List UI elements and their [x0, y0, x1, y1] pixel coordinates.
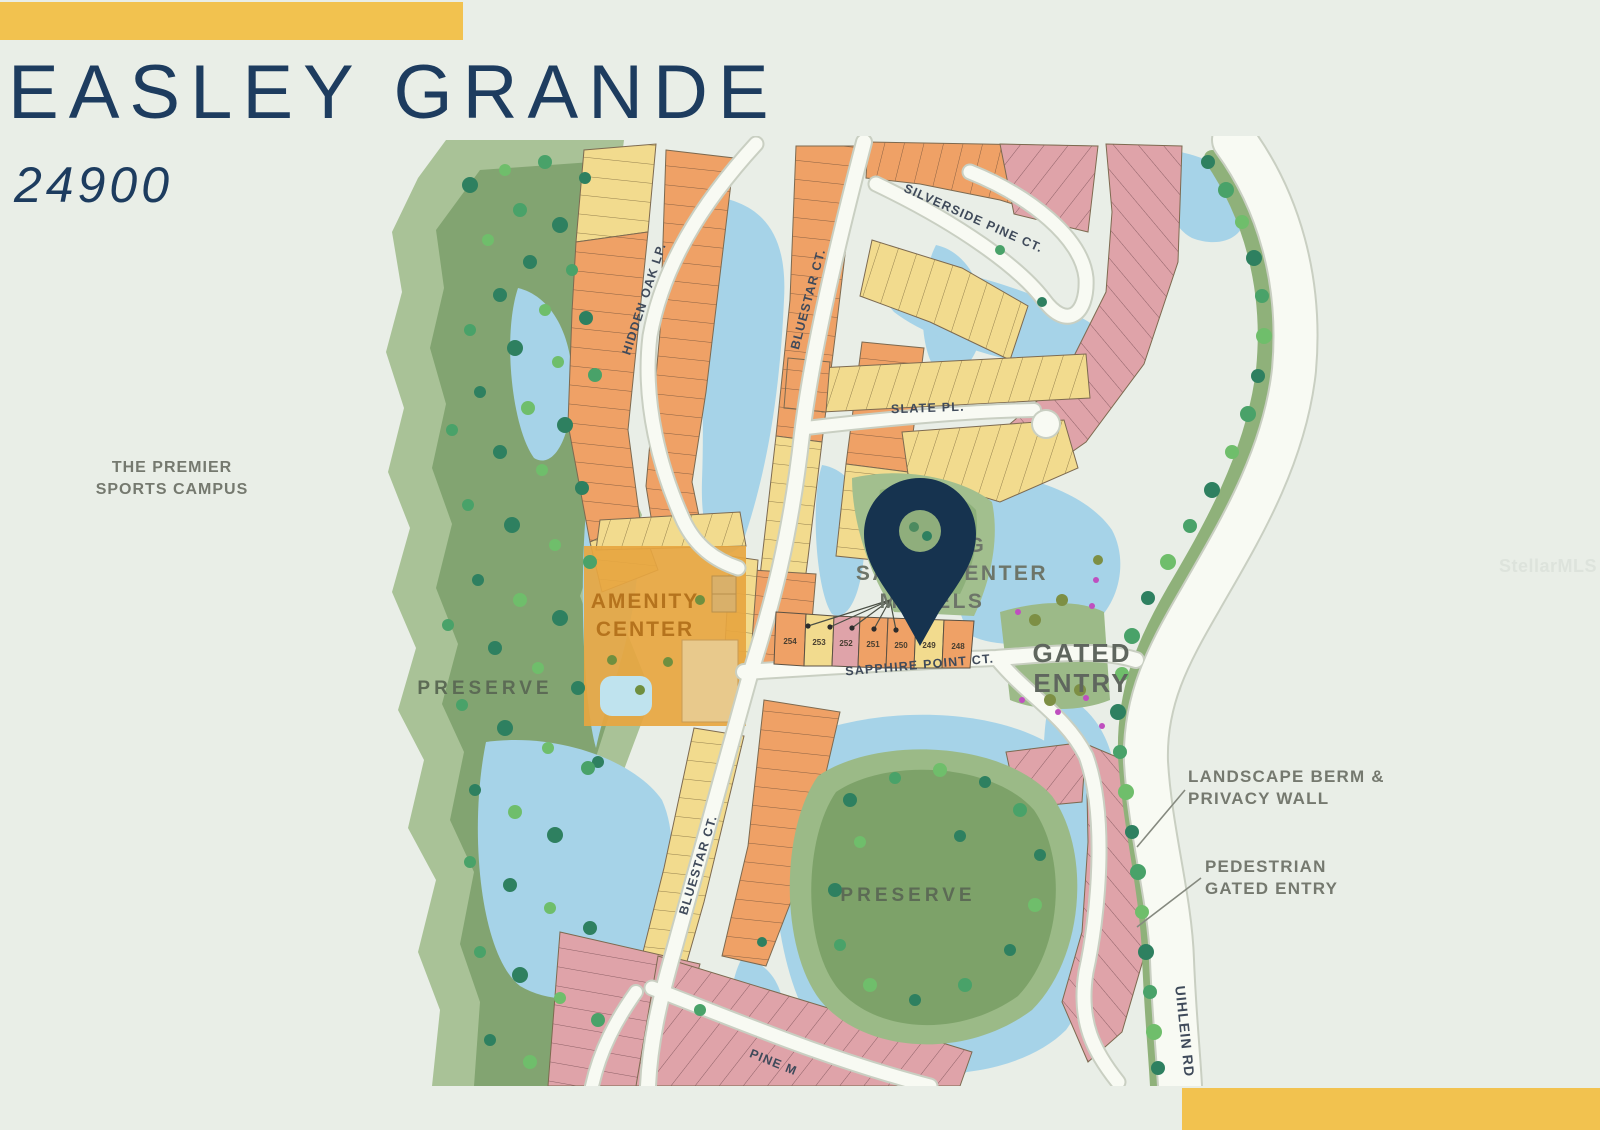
flyer-page: EASLEY GRANDE 24900 THE PREMIER SPORTS C…	[0, 0, 1600, 1130]
bottom-accent-bar	[1182, 1088, 1600, 1130]
watermark: StellarMLS	[1499, 556, 1597, 576]
svg-text:SPORTS CAMPUS: SPORTS CAMPUS	[96, 481, 249, 498]
community-number: 24900	[13, 157, 173, 213]
svg-text:LANDSCAPE BERM &: LANDSCAPE BERM &	[1188, 767, 1385, 786]
svg-text:252: 252	[839, 639, 853, 648]
gated-entry-label: GATED ENTRY	[1032, 638, 1131, 698]
lot-strip-hiddenoak-west-top	[576, 144, 656, 242]
preserve-left-label: PRESERVE	[417, 678, 552, 699]
slate-cul-de-sac	[1033, 411, 1059, 437]
preserve-bottom-label: PRESERVE	[840, 885, 975, 906]
svg-text:250: 250	[894, 641, 908, 650]
svg-text:GATED ENTRY: GATED ENTRY	[1205, 879, 1338, 898]
svg-text:249: 249	[922, 641, 936, 650]
svg-text:PRIVACY WALL: PRIVACY WALL	[1188, 789, 1329, 808]
pin-hole	[899, 510, 941, 552]
svg-text:CENTER: CENTER	[596, 618, 694, 641]
svg-text:251: 251	[866, 640, 880, 649]
svg-text:THE PREMIER: THE PREMIER	[112, 459, 232, 476]
svg-text:ENTRY: ENTRY	[1033, 668, 1130, 698]
map-canvas: EASLEY GRANDE 24900 THE PREMIER SPORTS C…	[0, 0, 1600, 1130]
svg-text:248: 248	[951, 642, 965, 651]
site-map: 254 253 252 251 250 249 248	[386, 140, 1296, 1086]
street-label-slate: SLATE PL.	[891, 400, 965, 417]
top-accent-bar	[0, 2, 463, 40]
svg-text:PEDESTRIAN: PEDESTRIAN	[1205, 857, 1327, 876]
svg-text:254: 254	[783, 637, 797, 646]
svg-text:AMENITY: AMENITY	[591, 590, 700, 613]
svg-text:253: 253	[812, 638, 826, 647]
svg-text:GATED: GATED	[1032, 638, 1131, 668]
community-title: EASLEY GRANDE	[8, 50, 779, 135]
